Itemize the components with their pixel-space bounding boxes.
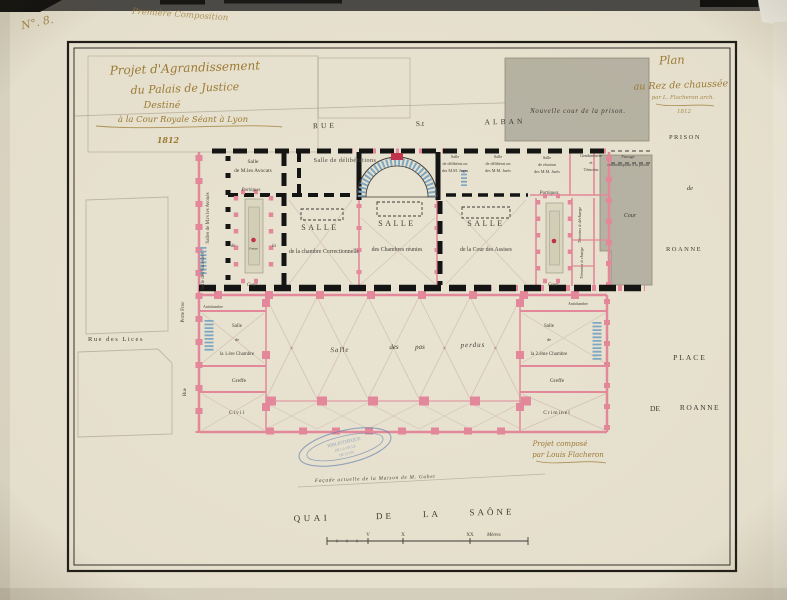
huissiers-label: Salle des Huissiers — [201, 252, 206, 290]
gendarmerie-line1: Gendarmerie — [580, 153, 602, 158]
salle-assises-sub: de la Cour des Assises — [460, 247, 513, 253]
antichambre-right-label: Antichambre — [568, 302, 588, 306]
porte-froc: Porte Froc — [181, 301, 186, 323]
hall-word2: des — [389, 343, 399, 351]
delib-juges-line2: de délibérat.on — [443, 161, 469, 166]
delib-juges-line1: Salle — [451, 154, 460, 159]
hall-word1: Salle — [330, 346, 349, 354]
salle-reunies-sub: des Chambres réunies — [372, 247, 424, 253]
reunion-jures-line3: des M.M. Jurés — [534, 169, 560, 174]
signature-line1: Projet composé — [532, 440, 588, 448]
nouvelle-cour-label: Nouvelle cour de la prison. — [529, 108, 626, 115]
place-line2: DE — [650, 404, 660, 413]
passage-line1: Passage — [621, 154, 634, 159]
quai-word2: DE — [376, 511, 394, 521]
plan-title-line1: Plan — [658, 53, 685, 68]
pompe-label: Pompe — [249, 247, 258, 251]
quai-word1: QUAI — [294, 513, 331, 524]
chambre1-line2: de — [235, 337, 239, 342]
chambre2-line3: la 2.ème Chambre — [531, 352, 568, 357]
reunion-jures-line2: de réunion — [538, 162, 557, 167]
delib-juges-line3: des M.M. Juges — [442, 168, 469, 173]
prison-line1: PRISON — [669, 134, 701, 141]
rue-des-lices: Rue des Lices — [88, 336, 144, 343]
hall-word4: perdus — [459, 341, 485, 349]
title-line3: Destiné — [143, 100, 181, 111]
avocats-line1: Salle — [248, 159, 260, 165]
chambre2-line2: de — [547, 337, 551, 342]
street-st-word: S.t — [416, 119, 425, 128]
portiques-right-label: Portiques — [539, 191, 559, 196]
street-alban-word: ALBAN — [484, 117, 525, 127]
chambre1-line3: la 1.ère Chambre — [220, 352, 255, 357]
cour-right-label: Cour — [548, 283, 558, 288]
salle-reunies-title: SALLE — [378, 219, 415, 228]
salle-correctionnelle-sub: de la chambre Correctionnelle — [289, 249, 359, 255]
rue-left: Rue — [183, 387, 188, 396]
delib-jures-line1: Salle — [494, 154, 503, 159]
place-line3: ROANNE — [680, 403, 720, 412]
salle-correctionnelle-title: SALLE — [301, 223, 338, 232]
portiques-left-label: Portiques — [241, 188, 261, 193]
prison-line3: ROANNE — [666, 246, 702, 253]
plan-title-line3: par L. Flacheron arch. — [652, 95, 715, 101]
scale-unit: Mètres — [486, 533, 501, 538]
gendarmerie-line3: Témoins — [584, 167, 599, 172]
plan-title-year: 1812 — [677, 109, 691, 115]
temoins-charge-label: Témoins à charge — [579, 247, 584, 279]
delib-jures-line2: de délibérat.on — [486, 161, 512, 166]
scanned-plan-sheet: N°. 8. Première Composition Projet d'Agr… — [0, 0, 787, 600]
deliberations-label: Salle de délibérations — [314, 158, 377, 164]
greffe-left-label: Greffe — [232, 377, 247, 384]
chambre1-line1: Salle — [232, 324, 243, 329]
scale-tick-20: XX — [466, 533, 474, 538]
quai-word3: LA — [423, 509, 441, 519]
chambre2-line1: Salle — [544, 324, 555, 329]
prison-cour-label: Cour — [624, 213, 637, 219]
hall-word3: pas — [414, 343, 425, 351]
place-line1: PLACE — [673, 353, 707, 362]
plan-drawing: N°. 8. Première Composition Projet d'Agr… — [0, 0, 787, 600]
salle-assises-title: SALLE — [467, 219, 504, 228]
antichambre-left-label: Antichambre — [203, 305, 223, 309]
scale-tick-10: X — [401, 533, 405, 538]
avoues-label: Salles de M.rs les Avoués — [206, 192, 211, 243]
pump-left — [251, 238, 256, 243]
criminel-label: Criminel — [543, 410, 571, 416]
civil-label: Civil — [229, 410, 245, 416]
signature-line2: par Louis Flacheron — [532, 451, 604, 459]
pump-right — [552, 239, 557, 244]
reunion-jures-line1: Salle — [543, 155, 552, 160]
passage-line2: communiquant à la prison — [607, 162, 649, 167]
greffe-right-label: Greffe — [550, 377, 565, 384]
quai-word4: SAÔNE — [469, 507, 514, 518]
temoins-decharge-label: Témoins à décharge — [577, 207, 582, 243]
tribunal-bench — [391, 153, 403, 160]
cour-left-la: la — [272, 244, 276, 249]
delib-jures-line3: des M.M. Jurés — [485, 168, 511, 173]
cour-left-label: Cour — [247, 283, 257, 288]
title-line4: à la Cour Royale Séant à Lyon — [118, 114, 248, 125]
avocats-line2: de M.les Avocats — [234, 168, 272, 174]
title-year: 1812 — [157, 135, 180, 145]
prison-line2: de — [687, 185, 693, 192]
street-rue-word: RUE — [313, 121, 337, 130]
scale-tick-5: V — [366, 533, 370, 538]
